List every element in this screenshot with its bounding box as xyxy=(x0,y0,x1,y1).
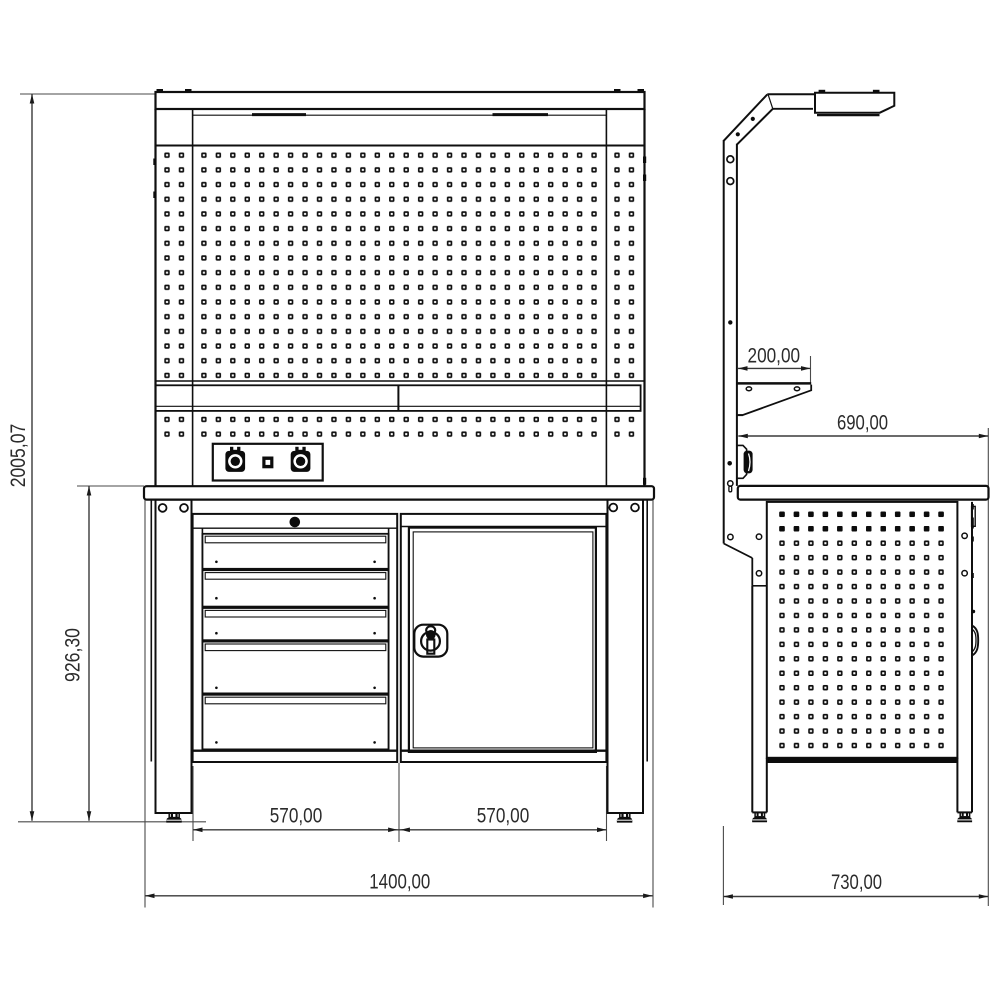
svg-text:2005,07: 2005,07 xyxy=(7,424,30,488)
svg-text:730,00: 730,00 xyxy=(831,871,882,894)
svg-text:690,00: 690,00 xyxy=(837,412,888,435)
svg-text:926,30: 926,30 xyxy=(62,628,85,682)
svg-text:1400,00: 1400,00 xyxy=(369,870,430,893)
svg-text:570,00: 570,00 xyxy=(270,805,323,828)
svg-text:200,00: 200,00 xyxy=(748,345,801,368)
svg-text:570,00: 570,00 xyxy=(477,805,530,828)
